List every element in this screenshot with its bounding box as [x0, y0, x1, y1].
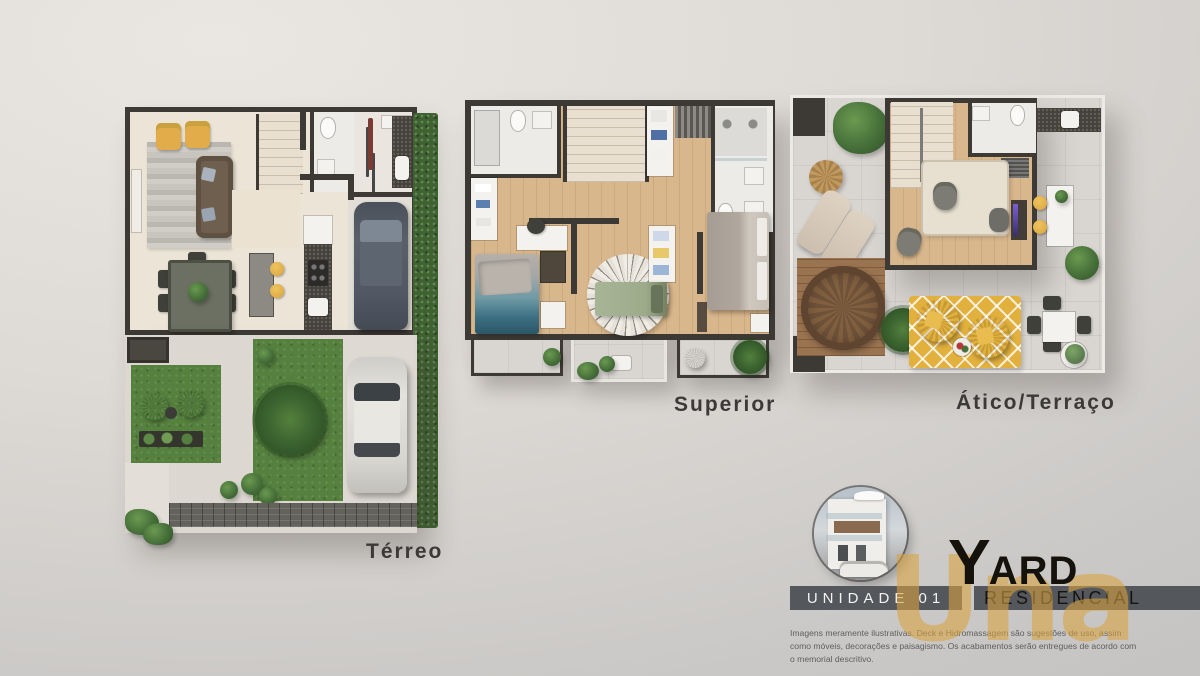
balcony-railing — [826, 513, 882, 519]
shower-2 — [715, 108, 767, 156]
suite-sink — [745, 168, 763, 184]
kitchen-sink — [308, 298, 328, 316]
spiky-plant — [143, 523, 173, 545]
car-white-windshield — [354, 383, 400, 401]
wall — [300, 112, 306, 150]
wall — [300, 174, 352, 180]
bistro-table — [809, 160, 843, 194]
kitchen-island — [250, 254, 273, 316]
patio-chair — [1077, 316, 1091, 334]
balcony-plant — [543, 348, 561, 366]
garden-chair — [177, 390, 204, 417]
dresser — [541, 252, 565, 282]
brand-initial: Y — [948, 536, 989, 588]
plan-atico — [790, 95, 1105, 382]
wall — [571, 218, 577, 294]
label-atico: Ático/Terraço — [956, 391, 1116, 415]
table-centerpiece — [188, 282, 208, 302]
bar-stool — [1033, 220, 1047, 234]
desk-chair — [989, 208, 1009, 232]
bathroom-1-sink — [533, 112, 551, 128]
linen-closet — [471, 178, 497, 240]
balcony-basket — [685, 348, 705, 368]
balcony-railing — [826, 535, 882, 541]
patio-chair — [1027, 316, 1041, 334]
plan-superior — [465, 100, 775, 387]
label-terreo: Térreo — [366, 540, 443, 564]
kitchen-stool — [270, 284, 284, 298]
trash-enclosure — [127, 337, 169, 363]
sofa-pillow — [201, 167, 216, 182]
bed-green-pillow — [651, 285, 663, 313]
wall — [577, 218, 619, 224]
balcony-palm — [733, 340, 767, 374]
gourmet-sink — [1061, 111, 1079, 128]
brand-rest: ARD — [989, 555, 1079, 588]
kids-wardrobe — [649, 226, 675, 282]
rooftop-umbrella — [854, 491, 884, 500]
plan-terreo — [125, 107, 438, 537]
bed-teal-duvet — [478, 258, 532, 296]
balcony-plant — [577, 362, 599, 380]
car-dark-windshield — [360, 220, 402, 242]
staircase — [563, 106, 649, 182]
patio-table — [1043, 312, 1075, 342]
terreo-garden-slab — [125, 335, 417, 533]
patio-chair — [1043, 296, 1061, 310]
car-dark-roof — [360, 242, 402, 286]
sofa-pillow — [201, 207, 216, 222]
bicycle — [368, 118, 373, 170]
brand-logo: YARD — [948, 522, 1078, 588]
armchair-yellow — [185, 121, 210, 148]
desk-chair — [527, 218, 545, 234]
garden-bush — [220, 481, 238, 499]
staircase — [256, 114, 303, 194]
kitchen-stool — [270, 262, 284, 276]
cooktop — [308, 260, 328, 286]
flower-side-table — [953, 338, 971, 356]
bar-plant — [1055, 190, 1068, 203]
atico-terrace-slab — [790, 95, 1105, 373]
nightstand — [541, 302, 565, 328]
wardrobe-clothes — [675, 106, 711, 138]
terrace-tree — [833, 102, 889, 154]
building-wood-band — [834, 521, 880, 533]
nightstand — [751, 314, 769, 332]
garden-side-table — [165, 407, 177, 419]
fridge — [304, 216, 332, 244]
balcony-plant — [599, 356, 615, 372]
wall — [697, 232, 703, 294]
car-white-rear-window — [354, 443, 400, 457]
stair-landing — [232, 190, 300, 248]
attic-sink — [973, 107, 989, 120]
potted-plant-leaves — [1065, 344, 1085, 364]
flower-planter — [139, 431, 203, 447]
bench — [697, 302, 707, 332]
kitchen-counter — [304, 244, 332, 330]
wardrobe-towels — [647, 106, 673, 176]
terrace-bush — [1065, 246, 1099, 280]
shower-glass — [715, 158, 767, 161]
lounge-pillow — [976, 327, 995, 346]
photo-car — [840, 561, 888, 577]
label-superior: Superior — [674, 393, 776, 417]
wall — [352, 192, 412, 197]
laundry-tub — [395, 156, 409, 180]
round-daybed-spa — [801, 266, 885, 350]
terreo-house-slab — [125, 107, 417, 335]
bed-master-pillow — [757, 262, 767, 300]
corner-block — [793, 98, 825, 136]
car-white-roof — [354, 401, 400, 443]
palm-tree — [255, 385, 325, 455]
garden-chair — [141, 393, 168, 420]
tv-screen — [1013, 204, 1018, 236]
shower-1 — [474, 110, 500, 166]
armchair-yellow — [156, 123, 181, 150]
bar-stool — [1033, 196, 1047, 210]
toilet — [1011, 106, 1024, 125]
bed-master-pillow — [757, 218, 767, 256]
sidewalk — [169, 503, 417, 527]
superior-slab — [465, 100, 775, 340]
armchair-gray — [933, 182, 957, 210]
toilet — [321, 118, 335, 138]
building-window — [838, 545, 848, 561]
garden-bush — [257, 347, 274, 364]
toilet — [511, 111, 525, 131]
building-window — [856, 545, 866, 561]
sideboard — [132, 170, 141, 232]
